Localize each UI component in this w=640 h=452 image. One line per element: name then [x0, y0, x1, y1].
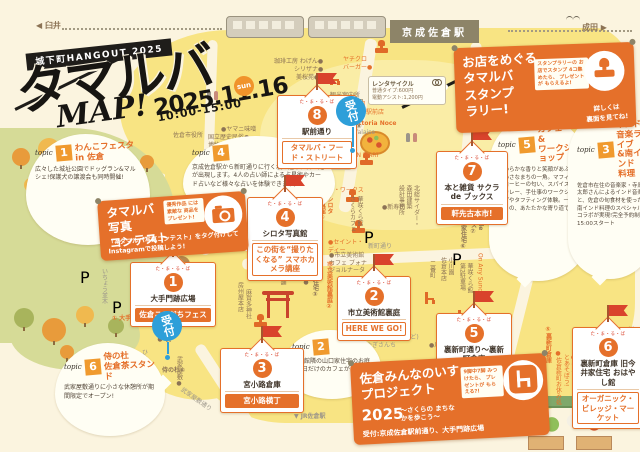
venue-marker-2: た・ま・る・ば 2 市立美術館裏庭 HERE WE GO!	[337, 276, 411, 341]
venue-tag: た・ま・る・ば	[225, 352, 299, 358]
map-label: 佐倉市役所	[173, 132, 203, 140]
chair-project-note: 9脚中7脚 みつけたら、 プレゼントが もらえる?!	[460, 365, 504, 398]
reception-pointer	[167, 342, 169, 354]
topic-title: インド 音楽ライブ &南インド 料理	[615, 120, 640, 180]
venue-number: 5	[465, 324, 484, 343]
bicycle-icon	[432, 80, 442, 86]
crate-icon	[528, 436, 564, 450]
venue-tag: た・ま・る・ば	[135, 266, 211, 272]
rail-dotted-line	[508, 30, 632, 32]
venue-number: 8	[308, 106, 327, 125]
topic-title: わんこフェスタ in 佐倉	[74, 141, 134, 164]
venue-name: 裏新町倉庫 旧今井家住宅 おはやし館	[577, 359, 639, 390]
map-label: 房州屋本店	[236, 282, 244, 312]
topic-body: 広々した城址公園でドッグラン&マルシェ!保護犬の譲渡会も同時開催!	[35, 166, 141, 183]
reception-pointer-dot	[350, 148, 355, 153]
topic-script: topic	[64, 363, 82, 371]
venue-tag: た・ま・る・ば	[577, 331, 639, 337]
rental-cycle-info: レンタサイクル 普通タイプ:600円 電動アシスト:1,200円	[368, 76, 446, 105]
stamp-rally-banner: お店をめぐる タマルバ スタンプ ラリー! スタンプラリーの お店でスタンプ 4…	[454, 42, 637, 133]
torii-gate-icon	[263, 291, 293, 318]
venue-event-label: 宮小路横丁	[225, 394, 299, 407]
venue-event-label: 軒先古本市!	[441, 207, 503, 220]
flag-icon	[284, 175, 286, 192]
topic-script: topic	[35, 149, 53, 157]
rental-price-electric: 電動アシスト:1,200円	[372, 95, 442, 102]
bird-icon	[566, 16, 580, 23]
chair-project-banner: 佐倉みんなのいす プロジェクト 2025 〜さくらの まちなかを歩こう〜 9脚中…	[350, 353, 550, 445]
venue-tag: た・ま・る・ば	[252, 201, 318, 207]
chair-project-title: 佐倉みんなのいす プロジェクト	[359, 363, 461, 403]
train-icon	[226, 16, 386, 38]
reception-pointer	[352, 127, 354, 147]
topic-number: 3	[597, 142, 614, 159]
stamp-rally-title: お店をめぐる タマルバ スタンプ ラリー!	[462, 50, 541, 120]
flag-icon	[261, 326, 263, 343]
topic-body: やわらかな香りと笑顔があふれる小さなまちの一角。マフィンとコーヒーの匂い、スパイ…	[498, 167, 578, 221]
stamp-rally-note: スタンプラリーの お店でスタンプ 4コ集めたら、 プレゼントが もらえるよ!	[534, 57, 589, 90]
venue-event-label: HERE WE GO!	[342, 322, 406, 335]
tree-icon	[12, 148, 30, 166]
venue-number: 1	[164, 273, 183, 292]
map-label: 華咲くら館 さくらカフェ	[348, 196, 363, 232]
map-label: 二番町	[428, 260, 436, 278]
map-label: いちょう並木	[100, 268, 108, 304]
map-label: 市立美術館裏庭②	[325, 261, 333, 310]
venue-tag: た・ま・る・ば	[342, 280, 406, 286]
venue-name: 大手門跡広場	[135, 294, 211, 306]
rental-price-normal: 普通タイプ:600円	[372, 88, 442, 95]
map-label: 北総サイダー・ 森田建築 設計事務所	[397, 185, 420, 227]
venue-name: 駅前通り	[282, 127, 352, 139]
topic-body: 武家屋敷通りに小さな休憩所が期間限定でオープン!	[64, 384, 156, 401]
topic-number: 6	[84, 358, 101, 375]
camera-icon	[203, 194, 244, 235]
tree-icon	[42, 318, 66, 342]
venue-event-label: タマルバ・フード・ストリート	[282, 141, 352, 164]
keisei-sakura-station-label: 京成佐倉駅	[390, 20, 479, 43]
map-label: ●ヤマニ味噌	[221, 126, 256, 134]
flag-icon	[607, 305, 609, 322]
map-label: ●佐倉新町お休み処	[554, 350, 562, 405]
venue-number: 6	[599, 338, 618, 357]
stamp-icon	[584, 50, 625, 91]
venue-number: 4	[276, 208, 295, 227]
topic-bubble-6: topic 6 侍の杜 佐倉茶スタンド 武家屋敷通りに小さな休憩所が期間限定でオ…	[55, 343, 165, 436]
topic-script: topic	[498, 141, 516, 149]
map-label: 小川園 佐倉本店	[439, 257, 454, 281]
venue-marker-7: た・ま・る・ば 7 本と雑貨 サクラ de ブックス 軒先古本市!	[436, 151, 508, 225]
chair-icon	[502, 359, 544, 401]
people-icon	[405, 130, 419, 142]
topic-script: topic	[192, 149, 210, 157]
chair-icon	[425, 292, 436, 304]
topic-number: 4	[212, 144, 229, 161]
venue-name: 宮小路倉庫	[225, 380, 299, 392]
topic-number: 5	[518, 136, 535, 153]
topic-title: 侍の杜 佐倉茶スタンド	[103, 351, 157, 383]
venue-marker-4: た・ま・る・ば 4 シロタ写真館 この街を“撮りたくなる” スマホカメラ講座	[247, 197, 323, 281]
venue-marker-6: た・ま・る・ば 6 裏新町倉庫 旧今井家住宅 おはやし館 オーガニック・ビレッジ…	[572, 327, 640, 429]
map-label: 珈琲工房 わげん●	[274, 58, 323, 66]
venue-number: 3	[253, 359, 272, 378]
chair-project-subtitle: 〜さくらの まちなかを歩こう〜	[400, 404, 459, 424]
topic-body: 佐倉市在住の音楽家・寺原太郎さんによるインド音楽と、佐倉の旬食材を使った南インド…	[577, 183, 640, 229]
venue-name: 市立美術館裏庭	[342, 308, 406, 320]
map-label: 新町通り	[368, 243, 392, 251]
topic-number: 1	[55, 144, 72, 161]
p-icon: P	[80, 268, 90, 287]
flag-icon	[373, 254, 375, 271]
topic-bubble-3: topic 3 インド 音楽ライブ &南インド 料理 佐倉市在住の音楽家・寺原太…	[568, 112, 640, 279]
map-label: 麻賀多神社	[244, 289, 252, 319]
photo-contest-note: 優秀作品 には素敵な 商品を プレゼント!	[163, 198, 205, 225]
tree-icon	[76, 306, 94, 324]
venue-event-label: オーガニック・ビレッジ・マーケット	[577, 392, 639, 424]
venue-event-label: この街を“撮りたくなる” スマホカメラ講座	[252, 243, 318, 275]
photo-contest-banner: タマルバ 写真 コンテスト 優秀作品 には素敵な 商品を プレゼント! 「#タマ…	[97, 191, 249, 261]
reception-pointer-dot	[165, 355, 170, 360]
map-label: 武家屋敷●	[175, 356, 183, 387]
chair-project-year: 2025	[361, 404, 404, 424]
flag-icon	[316, 73, 318, 90]
venue-marker-3: た・ま・る・ば 3 宮小路倉庫 宮小路横丁	[220, 348, 304, 413]
map-label: シリザナ●	[294, 66, 323, 74]
topic-script: topic	[577, 146, 595, 154]
venue-tag: た・ま・る・ば	[441, 317, 507, 323]
stamp-icon	[360, 160, 373, 165]
tamaruba-event-map: ◀ 臼井 成田 ▶ 京成佐倉駅 城下町HANGOUT 2025 タマルバ MAP…	[0, 0, 640, 452]
map-label: ▼ JR佐倉駅	[294, 413, 326, 421]
venue-tag: た・ま・る・ば	[441, 155, 503, 161]
map-label: ヤチクロ バーガー●	[343, 56, 372, 71]
rail-dotted-line	[62, 28, 222, 30]
venue-name: 本と雑貨 サクラ de ブックス	[441, 183, 503, 205]
venue-name: シロタ写真館	[252, 229, 318, 241]
venue-number: 2	[365, 287, 384, 306]
stamp-rally-footer: 詳しくは 裏面を見てね!	[585, 100, 629, 124]
tree-icon	[14, 308, 34, 328]
topic-number: 2	[312, 338, 329, 355]
stamp-icon	[375, 48, 388, 53]
direction-narita: 成田 ▶	[582, 22, 607, 33]
direction-usui: ◀ 臼井	[36, 20, 61, 31]
map-label: 華咲くら館 第2駐車場	[458, 263, 473, 293]
crate-icon	[576, 436, 612, 450]
flag-icon	[473, 291, 475, 308]
map-label: ●市立美術館 カフェ ブォナ ジョルナータ	[329, 252, 367, 275]
venue-number: 7	[463, 162, 482, 181]
